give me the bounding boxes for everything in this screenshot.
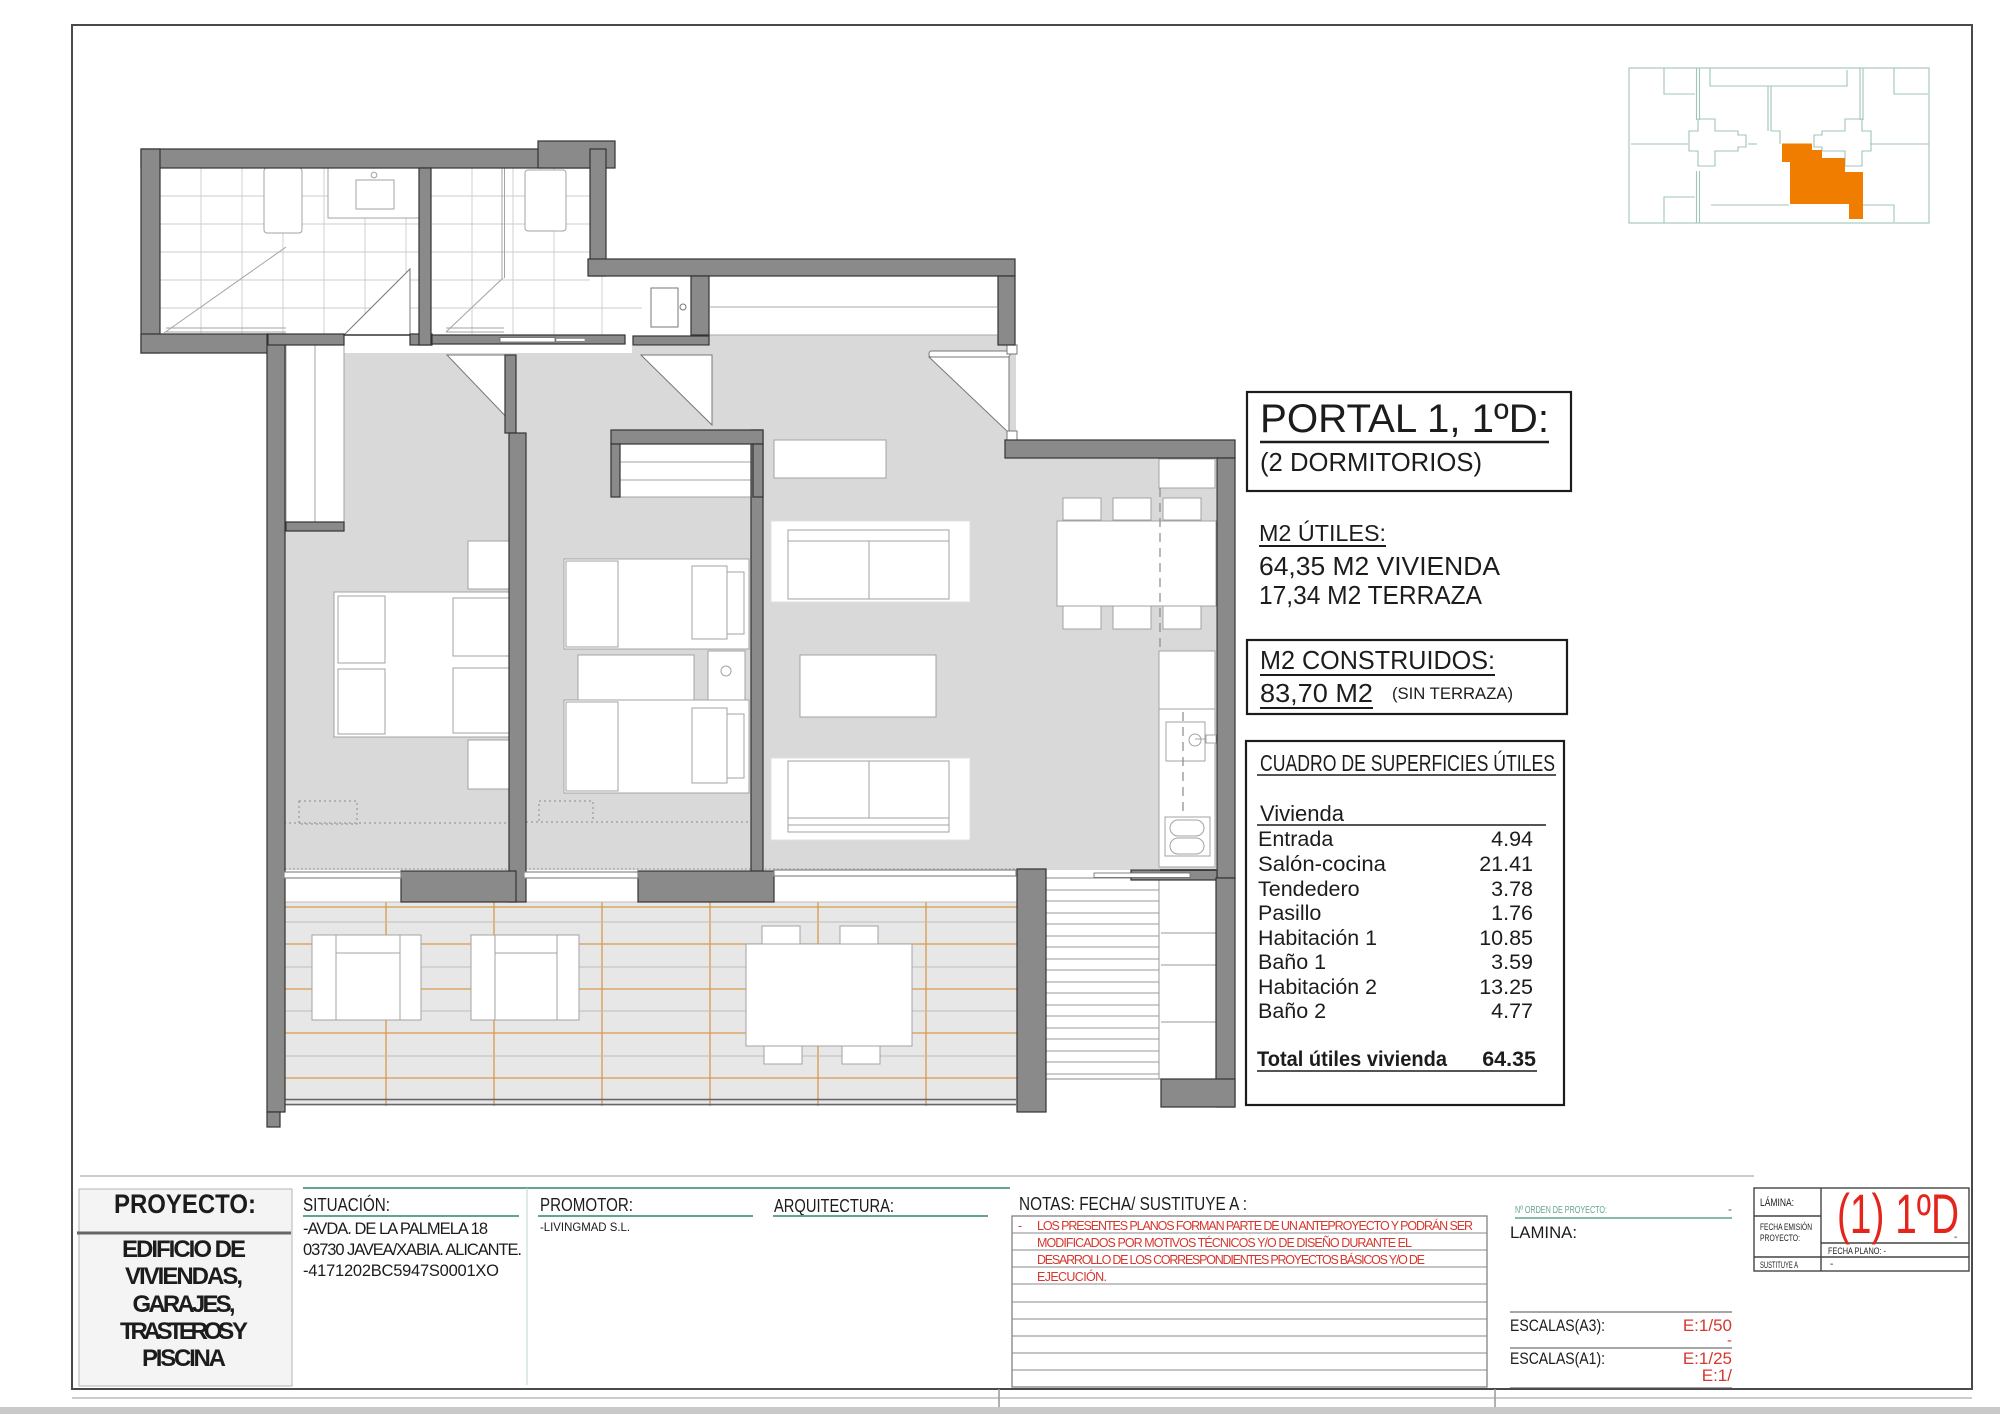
svg-text:3.78: 3.78 xyxy=(1491,877,1533,901)
svg-text:Habitación 1: Habitación 1 xyxy=(1258,926,1377,950)
svg-text:LOS PRESENTES PLANOS FORMAN PA: LOS PRESENTES PLANOS FORMAN PARTE DE UN … xyxy=(1037,1218,1473,1233)
svg-text:64,35 M2 VIVIENDA: 64,35 M2 VIVIENDA xyxy=(1259,551,1501,581)
svg-text:17,34 M2 TERRAZA: 17,34 M2 TERRAZA xyxy=(1259,580,1483,610)
svg-text:CUADRO DE SUPERFICIES ÚTILES: CUADRO DE SUPERFICIES ÚTILES xyxy=(1260,750,1555,776)
svg-text:LAMINA:: LAMINA: xyxy=(1510,1223,1577,1242)
svg-text:PROYECTO:: PROYECTO: xyxy=(114,1189,256,1219)
svg-text:LÁMINA:: LÁMINA: xyxy=(1760,1196,1794,1209)
svg-text:3.59: 3.59 xyxy=(1491,950,1533,974)
svg-text:Pasillo: Pasillo xyxy=(1258,901,1321,925)
svg-text:PISCINA: PISCINA xyxy=(142,1345,226,1372)
svg-text:ESCALAS(A3):: ESCALAS(A3): xyxy=(1510,1316,1605,1335)
svg-text:Vivienda: Vivienda xyxy=(1260,801,1345,826)
svg-text:PROMOTOR:: PROMOTOR: xyxy=(540,1195,633,1215)
svg-text:-: - xyxy=(1018,1219,1022,1233)
svg-text:Entrada: Entrada xyxy=(1258,827,1333,851)
svg-text:FECHA PLANO: -: FECHA PLANO: - xyxy=(1828,1246,1886,1257)
svg-text:FECHA EMISIÓN: FECHA EMISIÓN xyxy=(1760,1222,1812,1233)
svg-text:EJECUCIÓN.: EJECUCIÓN. xyxy=(1037,1269,1107,1284)
svg-text:(2 DORMITORIOS): (2 DORMITORIOS) xyxy=(1260,449,1482,477)
svg-text:-AVDA. DE LA PALMELA 18: -AVDA. DE LA PALMELA 18 xyxy=(303,1220,488,1238)
svg-text:TRASTEROS Y: TRASTEROS Y xyxy=(120,1318,248,1345)
svg-text:SUSTITUYE A: SUSTITUYE A xyxy=(1760,1260,1798,1271)
svg-text:-: - xyxy=(1727,1332,1732,1349)
svg-text:-LIVINGMAD S.L.: -LIVINGMAD S.L. xyxy=(540,1220,630,1234)
svg-text:(SIN TERRAZA): (SIN TERRAZA) xyxy=(1392,685,1513,703)
svg-text:Nº ORDEN DE PROYECTO:: Nº ORDEN DE PROYECTO: xyxy=(1515,1205,1607,1216)
svg-text:NOTAS: FECHA/ SUSTITUYE A :: NOTAS: FECHA/ SUSTITUYE A : xyxy=(1019,1194,1247,1214)
svg-text:M2 ÚTILES:: M2 ÚTILES: xyxy=(1259,520,1386,546)
svg-text:13.25: 13.25 xyxy=(1479,975,1533,999)
svg-text:-: - xyxy=(1830,1259,1833,1270)
svg-text:GARAJES,: GARAJES, xyxy=(133,1291,236,1318)
svg-text:Tendedero: Tendedero xyxy=(1258,877,1360,901)
svg-text:21.41: 21.41 xyxy=(1479,852,1533,876)
svg-text:E:1/: E:1/ xyxy=(1702,1366,1733,1385)
svg-text:Baño 1: Baño 1 xyxy=(1258,950,1326,974)
svg-text:ESCALAS(A1):: ESCALAS(A1): xyxy=(1510,1349,1605,1368)
svg-text:1.76: 1.76 xyxy=(1491,901,1533,925)
svg-text:83,70 M2: 83,70 M2 xyxy=(1260,678,1373,708)
svg-text:-: - xyxy=(1728,1202,1732,1216)
svg-text:4.77: 4.77 xyxy=(1491,999,1533,1023)
svg-text:4.94: 4.94 xyxy=(1491,827,1533,851)
svg-text:E:1/50: E:1/50 xyxy=(1683,1316,1732,1335)
svg-text:DESARROLLO DE LOS CORRESPONDIE: DESARROLLO DE LOS CORRESPONDIENTES PROYE… xyxy=(1037,1252,1425,1267)
svg-text:Baño 2: Baño 2 xyxy=(1258,999,1326,1023)
svg-text:03730 JAVEA/XABIA. ALICANTE.: 03730 JAVEA/XABIA. ALICANTE. xyxy=(303,1241,522,1259)
svg-text:64.35: 64.35 xyxy=(1482,1047,1536,1071)
svg-text:PROYECTO:: PROYECTO: xyxy=(1760,1233,1800,1244)
svg-text:PORTAL 1, 1ºD:: PORTAL 1, 1ºD: xyxy=(1260,397,1549,441)
svg-text:MODIFICADOS POR MOTIVOS TÉCNI: MODIFICADOS POR MOTIVOS TÉCNICOS Y/O DE … xyxy=(1037,1235,1412,1250)
svg-text:Habitación 2: Habitación 2 xyxy=(1258,975,1377,999)
svg-text:-4171202BC5947S0001XO: -4171202BC5947S0001XO xyxy=(303,1262,499,1280)
svg-text:10.85: 10.85 xyxy=(1479,926,1533,950)
svg-text:M2 CONSTRUIDOS:: M2 CONSTRUIDOS: xyxy=(1260,645,1495,675)
svg-text:VIVIENDAS,: VIVIENDAS, xyxy=(125,1263,243,1290)
svg-text:Total útiles vivienda: Total útiles vivienda xyxy=(1257,1047,1448,1071)
svg-text:(1) 1ºD: (1) 1ºD xyxy=(1837,1182,1959,1245)
svg-text:Salón-cocina: Salón-cocina xyxy=(1258,852,1386,876)
svg-text:SITUACIÓN:: SITUACIÓN: xyxy=(303,1194,390,1215)
svg-text:ARQUITECTURA:: ARQUITECTURA: xyxy=(774,1196,894,1216)
svg-text:EDIFICIO DE: EDIFICIO DE xyxy=(122,1236,246,1263)
